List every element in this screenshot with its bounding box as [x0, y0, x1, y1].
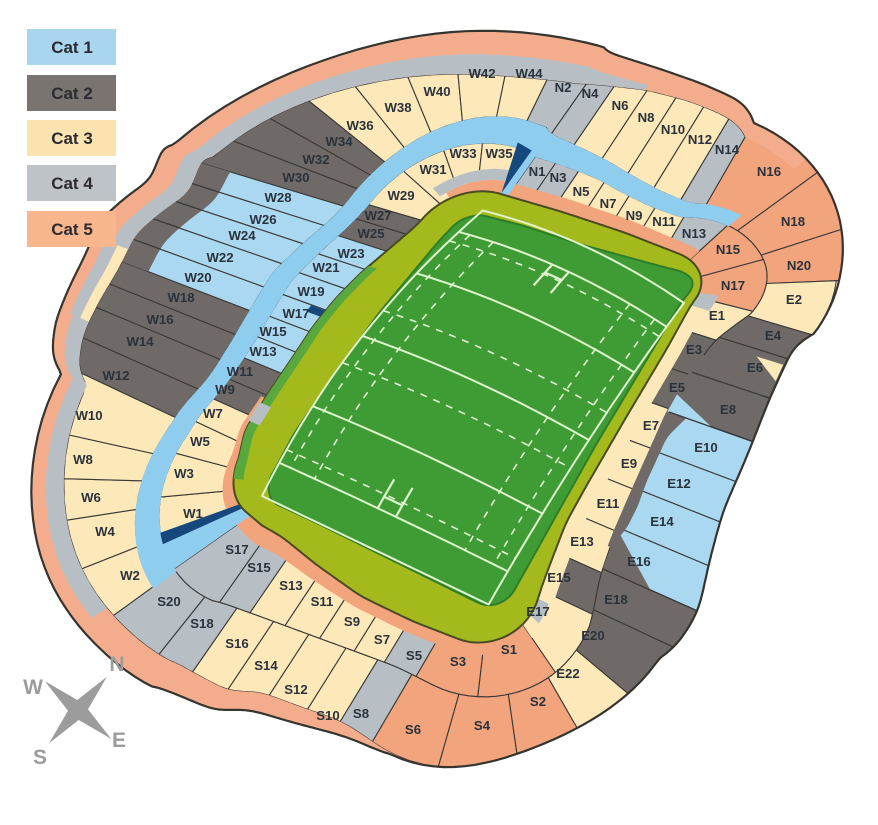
- svg-text:N2: N2: [555, 80, 572, 95]
- svg-text:W7: W7: [203, 406, 223, 421]
- svg-text:S: S: [33, 746, 47, 769]
- svg-text:W38: W38: [384, 100, 411, 115]
- svg-text:S6: S6: [405, 722, 421, 737]
- svg-text:S7: S7: [374, 632, 390, 647]
- svg-text:E11: E11: [597, 496, 620, 511]
- svg-text:S1: S1: [501, 642, 517, 657]
- svg-text:W18: W18: [167, 290, 194, 305]
- svg-text:Cat 2: Cat 2: [51, 84, 93, 103]
- svg-text:W10: W10: [75, 408, 102, 423]
- svg-text:S13: S13: [279, 578, 302, 593]
- svg-text:S20: S20: [157, 594, 180, 609]
- svg-text:W4: W4: [95, 524, 115, 539]
- svg-text:N16: N16: [757, 164, 781, 179]
- svg-text:N15: N15: [716, 242, 740, 257]
- svg-text:E15: E15: [547, 570, 570, 585]
- svg-text:Cat 3: Cat 3: [51, 129, 93, 148]
- svg-text:W26: W26: [249, 212, 276, 227]
- svg-text:E8: E8: [720, 402, 736, 417]
- svg-text:S3: S3: [450, 654, 466, 669]
- svg-text:E2: E2: [786, 292, 802, 307]
- svg-text:E4: E4: [765, 328, 782, 343]
- svg-text:W17: W17: [282, 306, 309, 321]
- svg-text:N12: N12: [688, 132, 712, 147]
- svg-text:W3: W3: [174, 466, 194, 481]
- svg-text:S5: S5: [406, 648, 422, 663]
- svg-text:E7: E7: [643, 418, 659, 433]
- svg-text:E10: E10: [694, 440, 717, 455]
- svg-text:N6: N6: [612, 98, 629, 113]
- svg-text:N1: N1: [529, 164, 546, 179]
- svg-text:E20: E20: [581, 628, 604, 643]
- svg-text:N13: N13: [682, 226, 706, 241]
- svg-text:N20: N20: [787, 258, 811, 273]
- svg-text:S10: S10: [316, 708, 339, 723]
- svg-text:W31: W31: [419, 162, 446, 177]
- svg-text:N18: N18: [781, 214, 805, 229]
- svg-text:W36: W36: [346, 118, 373, 133]
- svg-text:S15: S15: [247, 560, 270, 575]
- svg-text:W33: W33: [449, 146, 476, 161]
- svg-text:S16: S16: [225, 636, 248, 651]
- svg-text:N10: N10: [661, 122, 685, 137]
- svg-text:W24: W24: [228, 228, 256, 243]
- svg-text:N: N: [109, 653, 124, 676]
- svg-text:W11: W11: [227, 364, 253, 379]
- svg-text:N14: N14: [715, 142, 740, 157]
- svg-text:Cat 4: Cat 4: [51, 174, 93, 193]
- svg-text:W30: W30: [282, 170, 309, 185]
- svg-text:W40: W40: [423, 84, 450, 99]
- svg-text:Cat 1: Cat 1: [51, 38, 93, 57]
- svg-text:S14: S14: [254, 658, 278, 673]
- svg-text:Cat 5: Cat 5: [51, 220, 93, 239]
- svg-text:N3: N3: [550, 170, 567, 185]
- svg-text:E16: E16: [627, 554, 650, 569]
- svg-text:W13: W13: [249, 344, 276, 359]
- svg-text:W32: W32: [302, 152, 329, 167]
- svg-text:W15: W15: [259, 324, 286, 339]
- svg-text:W12: W12: [102, 368, 129, 383]
- svg-text:S8: S8: [353, 706, 369, 721]
- svg-text:E5: E5: [669, 380, 685, 395]
- svg-text:E9: E9: [621, 456, 637, 471]
- svg-text:N5: N5: [573, 184, 590, 199]
- svg-text:W1: W1: [183, 506, 203, 521]
- svg-text:S4: S4: [474, 718, 491, 733]
- svg-text:E1: E1: [709, 308, 725, 323]
- svg-text:W22: W22: [206, 250, 233, 265]
- svg-text:E18: E18: [604, 592, 627, 607]
- svg-text:W9: W9: [215, 382, 235, 397]
- svg-text:N4: N4: [582, 86, 600, 101]
- svg-text:W28: W28: [264, 190, 291, 205]
- svg-text:W: W: [23, 676, 43, 699]
- svg-text:E17: E17: [526, 604, 549, 619]
- svg-text:W5: W5: [190, 434, 210, 449]
- svg-text:N11: N11: [652, 214, 675, 229]
- svg-text:W21: W21: [312, 260, 339, 275]
- svg-text:S11: S11: [311, 594, 334, 609]
- svg-text:S2: S2: [530, 694, 546, 709]
- svg-text:W8: W8: [73, 452, 93, 467]
- svg-text:W20: W20: [184, 270, 211, 285]
- svg-text:N8: N8: [638, 110, 655, 125]
- svg-text:E: E: [112, 729, 126, 752]
- svg-text:E6: E6: [747, 360, 763, 375]
- svg-text:W44: W44: [515, 66, 543, 81]
- svg-text:N7: N7: [600, 196, 617, 211]
- svg-text:W29: W29: [387, 188, 414, 203]
- svg-text:N9: N9: [626, 208, 643, 223]
- svg-text:W2: W2: [120, 568, 140, 583]
- svg-text:W16: W16: [146, 312, 173, 327]
- svg-text:E12: E12: [667, 476, 690, 491]
- svg-text:W19: W19: [297, 284, 324, 299]
- svg-text:W6: W6: [81, 490, 101, 505]
- svg-text:S17: S17: [225, 542, 248, 557]
- svg-text:W23: W23: [337, 246, 364, 261]
- svg-text:N17: N17: [721, 278, 745, 293]
- svg-text:E13: E13: [570, 534, 593, 549]
- svg-text:E14: E14: [650, 514, 674, 529]
- svg-text:W25: W25: [357, 226, 384, 241]
- svg-text:E3: E3: [686, 342, 702, 357]
- svg-text:W35: W35: [485, 146, 512, 161]
- svg-text:W27: W27: [364, 208, 391, 223]
- svg-text:S9: S9: [344, 614, 360, 629]
- svg-text:W14: W14: [126, 334, 154, 349]
- svg-text:S18: S18: [190, 616, 213, 631]
- svg-text:E22: E22: [556, 666, 579, 681]
- svg-text:W34: W34: [325, 134, 353, 149]
- svg-text:S12: S12: [284, 682, 307, 697]
- svg-text:W42: W42: [468, 66, 495, 81]
